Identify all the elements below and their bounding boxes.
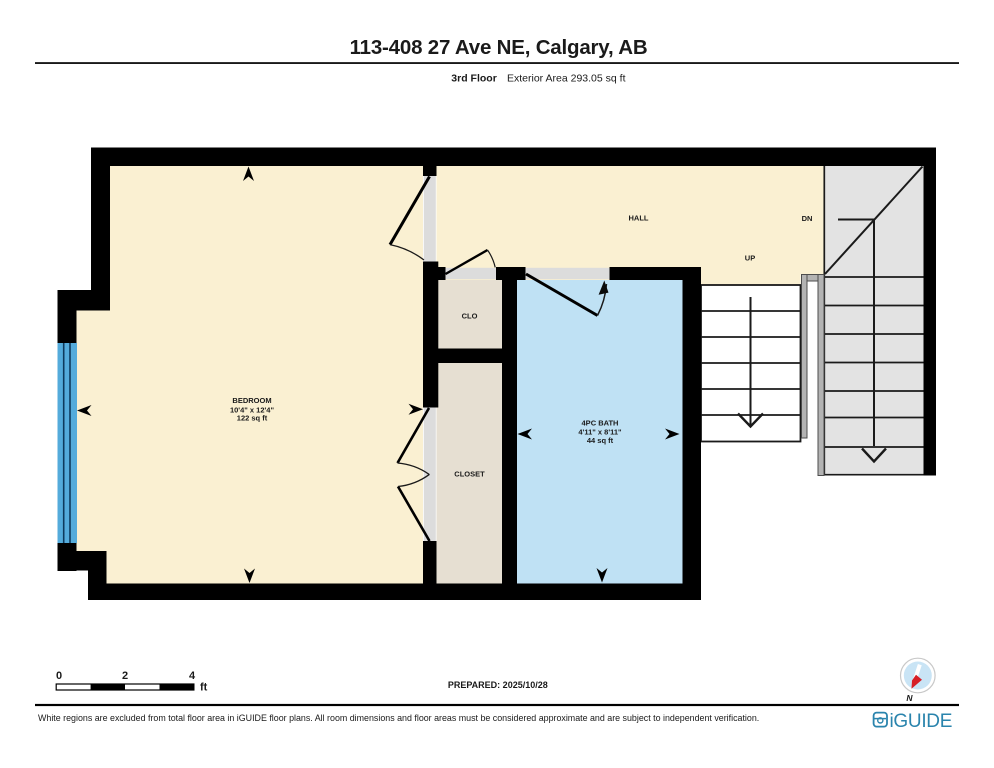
svg-text:DN: DN bbox=[802, 214, 813, 223]
svg-text:White regions are excluded fro: White regions are excluded from total fl… bbox=[38, 713, 759, 723]
svg-text:2: 2 bbox=[122, 670, 128, 682]
svg-text:Exterior Area 293.05 sq ft: Exterior Area 293.05 sq ft bbox=[507, 73, 626, 85]
svg-text:PREPARED: 2025/10/28: PREPARED: 2025/10/28 bbox=[448, 680, 548, 690]
svg-text:44 sq ft: 44 sq ft bbox=[587, 436, 614, 445]
svg-text:HALL: HALL bbox=[629, 214, 649, 223]
svg-text:4PC BATH: 4PC BATH bbox=[582, 418, 619, 427]
svg-text:iGUIDE: iGUIDE bbox=[890, 711, 953, 732]
svg-text:0: 0 bbox=[56, 670, 62, 682]
svg-text:113-408 27 Ave NE, Calgary, AB: 113-408 27 Ave NE, Calgary, AB bbox=[350, 36, 648, 59]
svg-text:BEDROOM: BEDROOM bbox=[232, 396, 271, 405]
svg-text:ft: ft bbox=[200, 682, 208, 694]
svg-text:CLO: CLO bbox=[462, 312, 478, 321]
svg-text:122 sq ft: 122 sq ft bbox=[237, 413, 268, 422]
svg-text:3rd Floor: 3rd Floor bbox=[451, 73, 497, 85]
svg-text:4: 4 bbox=[189, 670, 196, 682]
svg-text:N: N bbox=[906, 693, 913, 703]
svg-text:UP: UP bbox=[745, 254, 755, 263]
svg-text:CLOSET: CLOSET bbox=[454, 470, 485, 479]
